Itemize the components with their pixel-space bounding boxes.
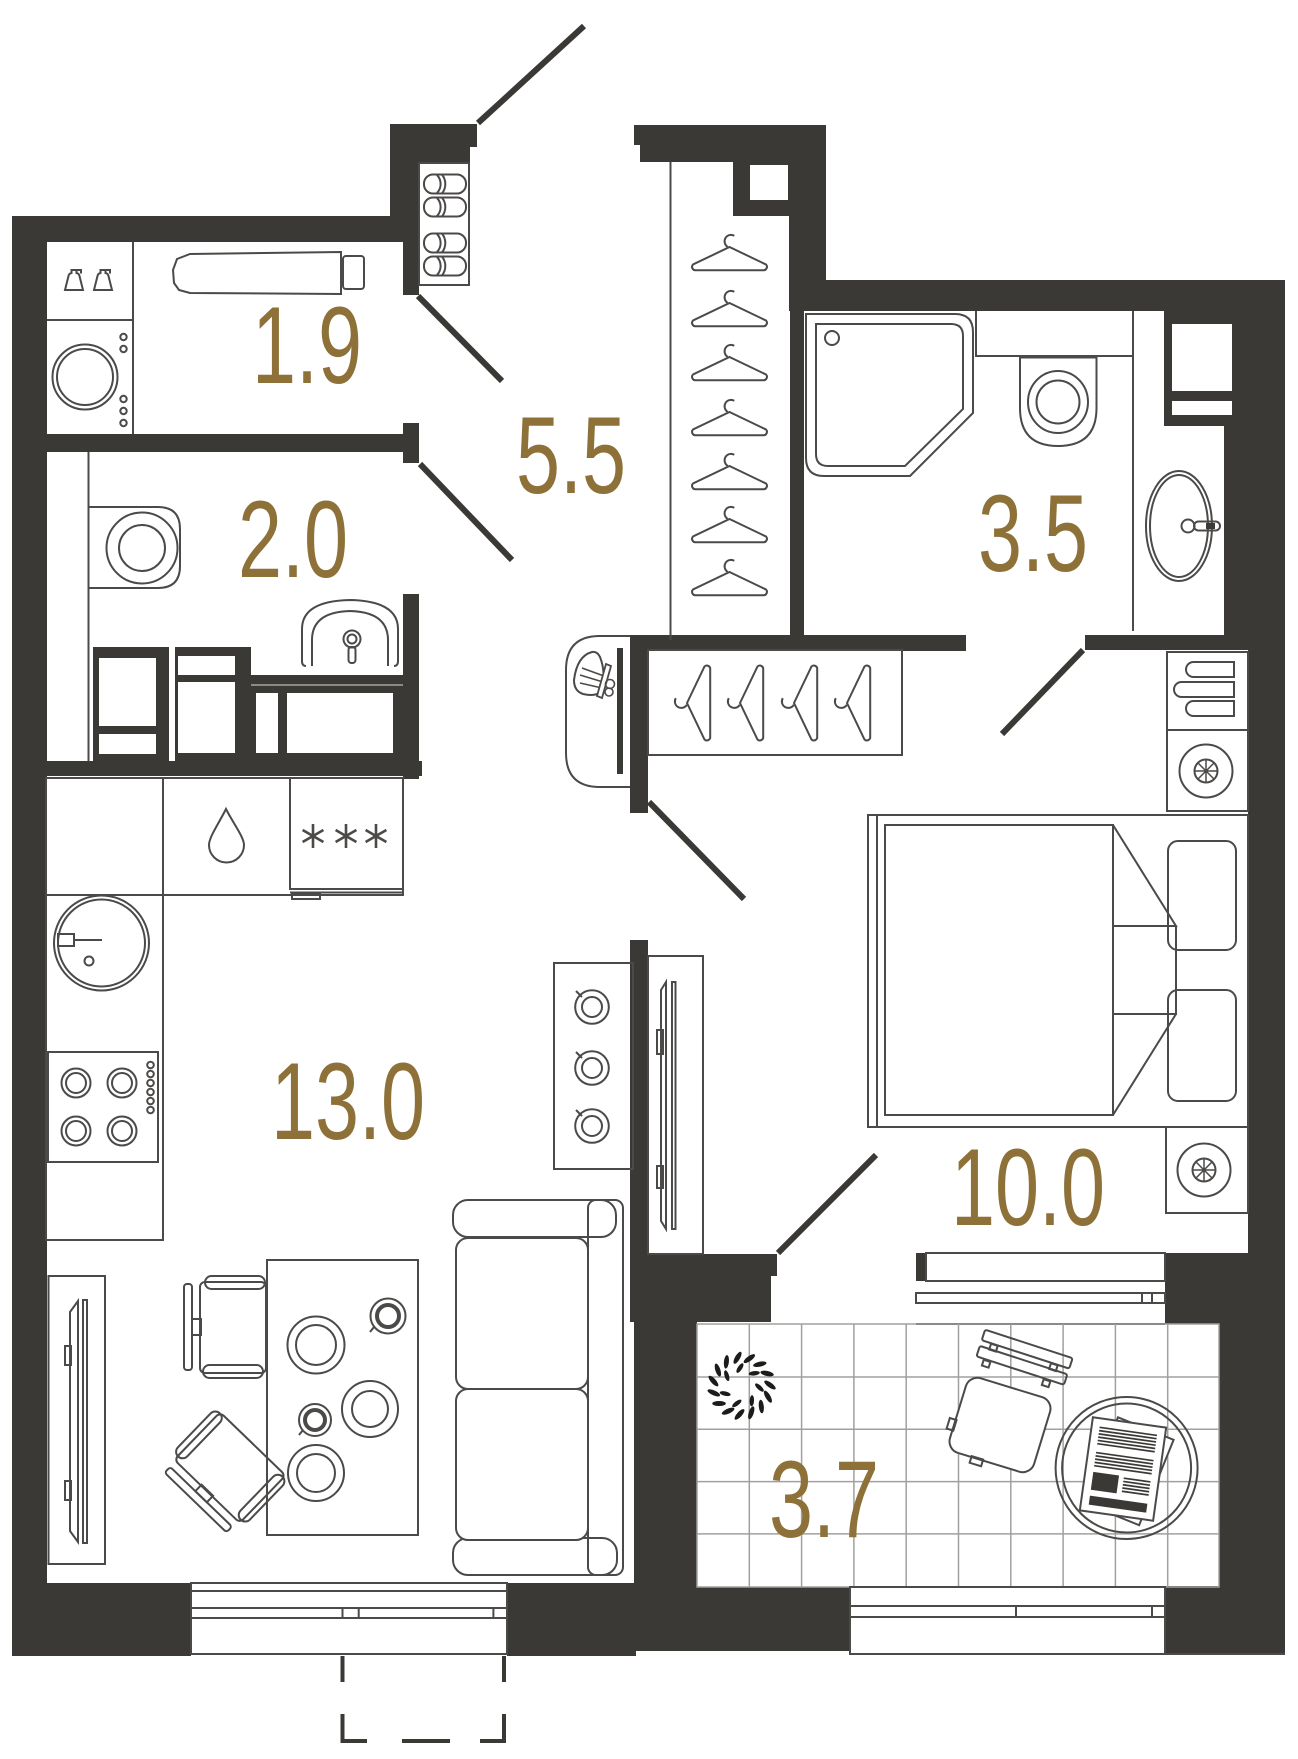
svg-text:3.5: 3.5 [978, 472, 1088, 595]
svg-text:2.0: 2.0 [238, 478, 348, 601]
svg-text:3.7: 3.7 [769, 1438, 879, 1561]
svg-text:13.0: 13.0 [271, 1040, 425, 1163]
svg-text:5.5: 5.5 [516, 394, 626, 517]
svg-text:10.0: 10.0 [951, 1126, 1105, 1249]
svg-text:1.9: 1.9 [252, 284, 362, 407]
